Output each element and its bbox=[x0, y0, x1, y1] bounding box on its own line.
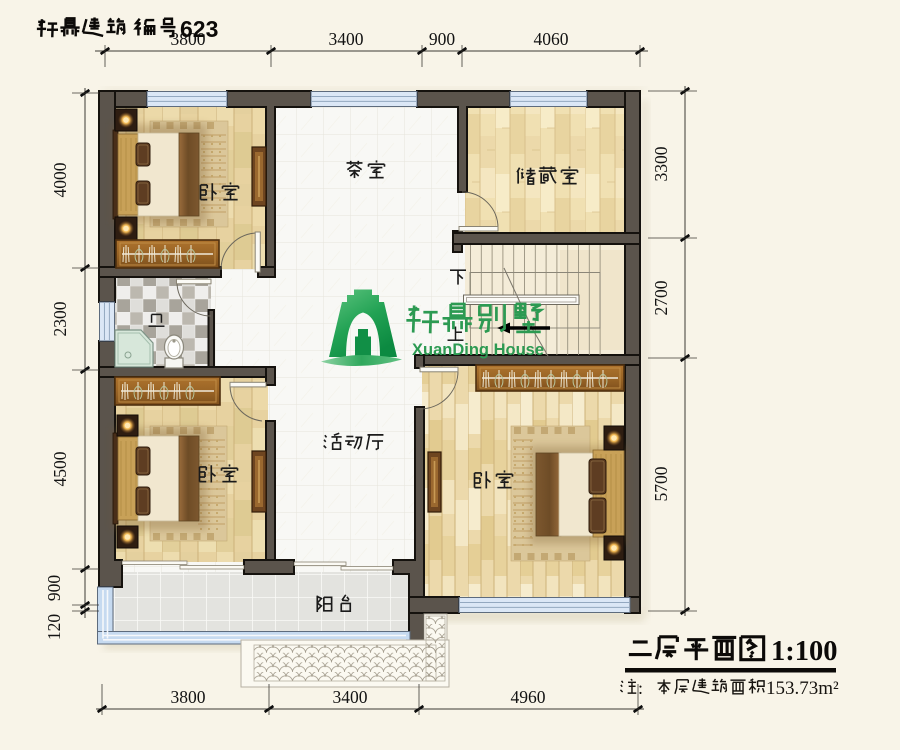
svg-text:900: 900 bbox=[429, 29, 456, 49]
svg-text:3400: 3400 bbox=[333, 687, 368, 707]
svg-text:3300: 3300 bbox=[651, 146, 671, 181]
svg-text:900: 900 bbox=[44, 575, 64, 602]
svg-text:153.73m²: 153.73m² bbox=[766, 678, 839, 699]
svg-text:4000: 4000 bbox=[50, 162, 70, 197]
svg-text:1:100: 1:100 bbox=[771, 636, 838, 667]
svg-text::: : bbox=[638, 678, 643, 698]
svg-text:5700: 5700 bbox=[651, 466, 671, 501]
svg-text:120: 120 bbox=[44, 614, 64, 641]
svg-text:4500: 4500 bbox=[50, 451, 70, 486]
svg-text:623: 623 bbox=[180, 16, 218, 42]
svg-text:2300: 2300 bbox=[50, 301, 70, 336]
svg-text:2700: 2700 bbox=[651, 280, 671, 315]
svg-text:XuanDing House: XuanDing House bbox=[412, 341, 544, 359]
svg-text:4060: 4060 bbox=[534, 29, 569, 49]
svg-text:3400: 3400 bbox=[329, 29, 364, 49]
svg-text:3800: 3800 bbox=[171, 687, 206, 707]
svg-text:4960: 4960 bbox=[511, 687, 546, 707]
